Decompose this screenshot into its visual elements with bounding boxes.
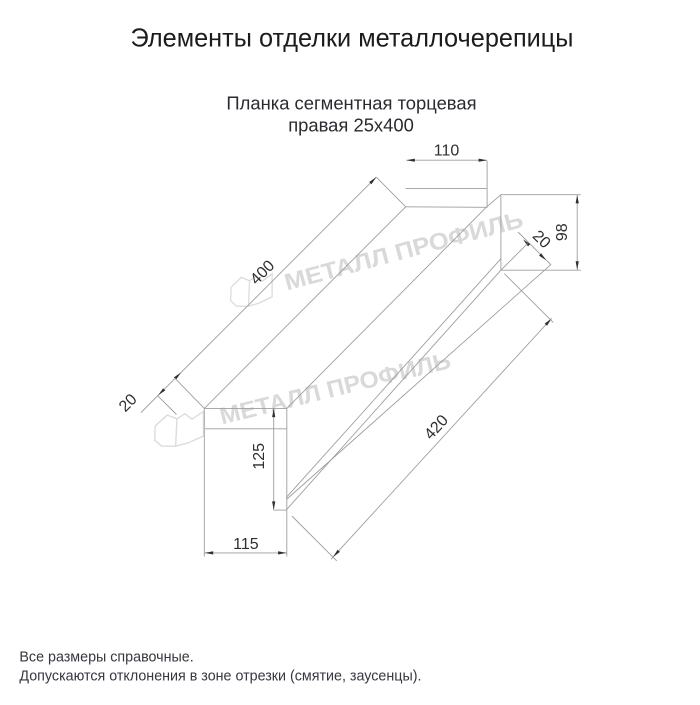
svg-text:Допускаются отклонения в зоне: Допускаются отклонения в зоне отрезки (с… [19, 669, 421, 685]
svg-text:Все размеры справочные.: Все размеры справочные. [19, 650, 193, 666]
svg-text:Элементы отделки металлочерепи: Элементы отделки металлочерепицы [131, 24, 574, 52]
svg-text:98: 98 [554, 223, 571, 241]
svg-text:правая 25х400: правая 25х400 [288, 115, 414, 136]
svg-text:Планка сегментная торцевая: Планка сегментная торцевая [226, 92, 476, 113]
svg-text:125: 125 [251, 443, 268, 470]
svg-text:110: 110 [434, 143, 460, 160]
svg-text:115: 115 [233, 536, 259, 553]
